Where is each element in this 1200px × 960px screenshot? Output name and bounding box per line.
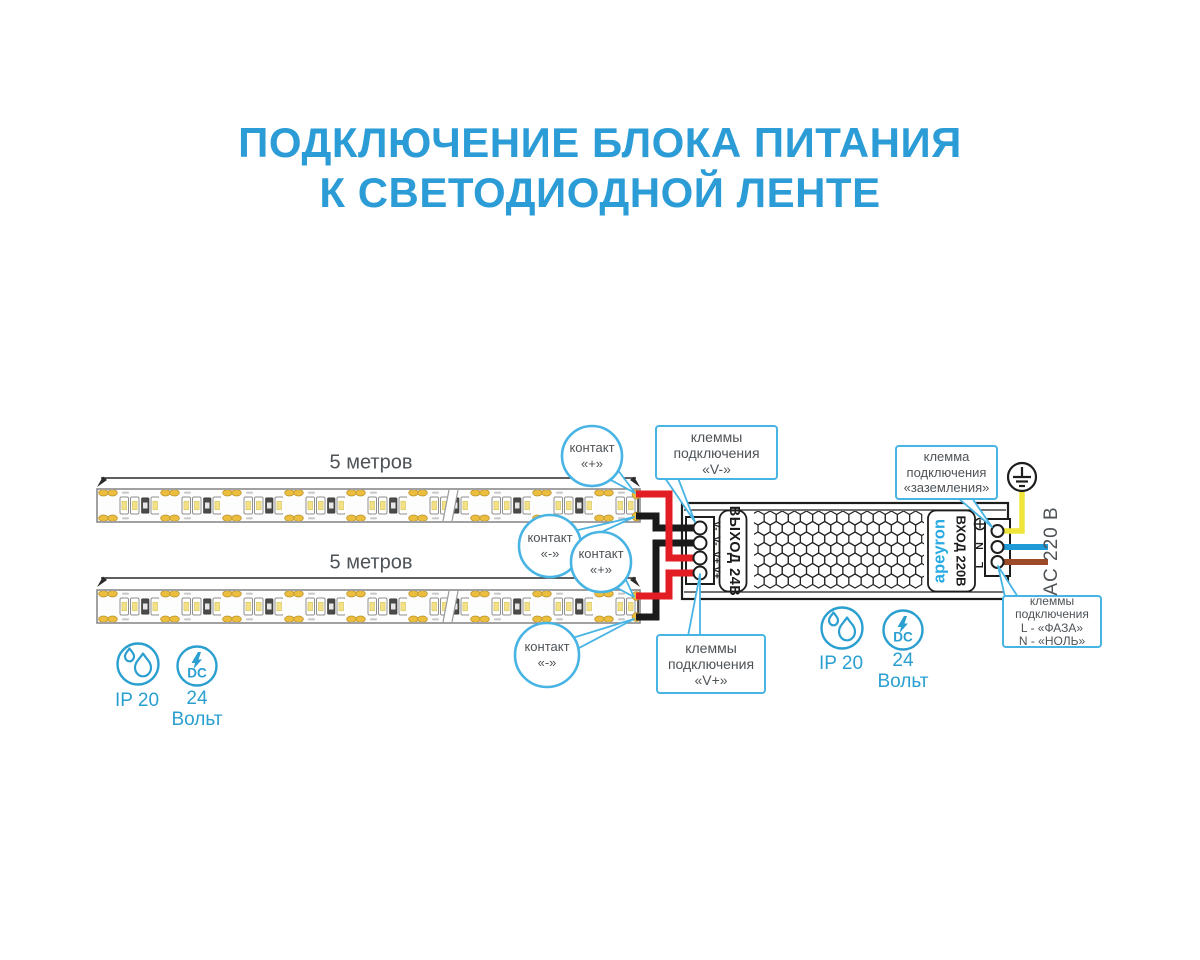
ip-rating-icon-right (822, 608, 863, 649)
mains-voltage-label: AC 220 В (1041, 506, 1063, 595)
contact-callout-3-value: «+» (578, 562, 623, 578)
contact-callout-4: контакт «-» (524, 639, 569, 671)
psu-brand-logo: apeyron (931, 519, 950, 583)
contact-callout-4-value: «-» (524, 655, 569, 671)
v-minus-line3: «V-» (702, 461, 731, 477)
dc-text-left: DC (187, 666, 207, 681)
psu-output-terminal-labels: V- V- V+ V+ (711, 521, 722, 579)
strip1-length-label: 5 метров (330, 452, 413, 475)
ip-rating-icon-left (118, 644, 159, 685)
contact-callout-2-value: «-» (527, 546, 572, 562)
mains-line4: N - «НОЛЬ» (1019, 635, 1085, 648)
contact-callout-1: контакт «+» (569, 440, 614, 472)
led-strip-2 (97, 590, 641, 623)
ground-line2: подключения (907, 465, 987, 481)
v-minus-callout-box: клеммы подключения «V-» (655, 425, 778, 480)
voltage-unit-right: Вольт (877, 671, 928, 693)
v-minus-line2: подключения (673, 445, 759, 461)
dc-text-right: DC (893, 630, 913, 645)
ground-line3: «заземления» (904, 480, 990, 496)
psu-terminal-n-label: N (974, 542, 986, 550)
ground-line1: клемма (924, 449, 970, 465)
ip-rating-label-right: IP 20 (819, 653, 863, 675)
voltage-value-left: 24 (186, 688, 207, 710)
contact-callout-4-label: контакт (524, 639, 569, 655)
v-plus-line2: подключения (668, 656, 754, 672)
v-minus-line1: клеммы (691, 429, 743, 445)
contact-callout-3-label: контакт (578, 546, 623, 562)
contact-callout-1-label: контакт (569, 440, 614, 456)
diagram-graphics (0, 0, 1200, 960)
input-terminal-screws (992, 525, 1004, 568)
ip-rating-label-left: IP 20 (115, 690, 159, 712)
earth-ground-icon (1008, 463, 1036, 491)
v-plus-line3: «V+» (694, 672, 727, 688)
contact-callout-3: контакт «+» (578, 546, 623, 578)
dimension-line-strip2 (97, 577, 640, 588)
contact-callout-2-label: контакт (527, 530, 572, 546)
contact-callout-2: контакт «-» (527, 530, 572, 562)
psu-input-label: ВХОД 220В (954, 515, 969, 586)
dimension-line-strip1 (97, 477, 640, 488)
psu-terminal-l-label: L (974, 562, 986, 568)
v-plus-line1: клеммы (685, 640, 737, 656)
wiring-diagram-canvas: ПОДКЛЮЧЕНИЕ БЛОКА ПИТАНИЯ К СВЕТОДИОДНОЙ… (0, 0, 1200, 960)
psu-output-label: ВЫХОД 24В (726, 506, 742, 597)
mains-line2: подключения (1015, 608, 1089, 621)
ground-callout-box: клемма подключения «заземления» (895, 445, 998, 500)
v-plus-callout-box: клеммы подключения «V+» (656, 634, 766, 694)
strip2-length-label: 5 метров (330, 552, 413, 575)
voltage-value-right: 24 (892, 650, 913, 672)
contact-callout-1-value: «+» (569, 456, 614, 472)
mains-line3: L - «ФАЗА» (1021, 622, 1083, 635)
mains-callout-box: клеммы подключения L - «ФАЗА» N - «НОЛЬ» (1002, 595, 1102, 648)
voltage-unit-left: Вольт (171, 709, 222, 731)
